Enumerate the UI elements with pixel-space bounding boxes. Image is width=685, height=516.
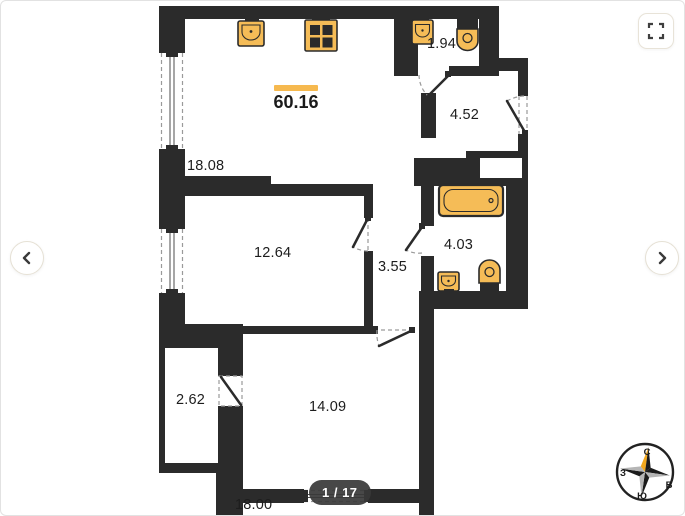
floorplan-viewer: 60.16 18.08 1.94 4.52 12.64 3.55 4.03 2.…: [0, 0, 685, 516]
windows: [162, 53, 369, 502]
chevron-left-icon: [20, 251, 34, 265]
sink-icon: [438, 272, 459, 294]
room-area-label: 3.55: [378, 259, 407, 275]
room-area-label: 2.62: [176, 392, 205, 408]
door-icon: [507, 96, 528, 136]
room-area-label: 4.52: [450, 107, 479, 123]
bathtub-icon: [439, 185, 503, 216]
room-area-label: 14.09: [309, 399, 346, 415]
total-area-label: 60.16: [264, 92, 328, 113]
total-area-bar: [274, 85, 318, 91]
room-area-label: 1.94: [427, 36, 456, 52]
floorplan-canvas: [1, 1, 685, 516]
toilet-icon: [457, 17, 478, 51]
window-icon: [162, 229, 183, 293]
fullscreen-button[interactable]: [638, 13, 674, 49]
compass-south-label: Ю: [637, 491, 647, 502]
page-indicator: 1 / 17: [309, 480, 371, 505]
room-area-label: 12.64: [254, 245, 291, 261]
next-slide-button[interactable]: [645, 241, 679, 275]
wall-niche: [480, 158, 522, 178]
door-icon: [377, 327, 415, 346]
toilet-icon: [479, 260, 500, 292]
room-area-label: 18.00: [235, 497, 272, 513]
door-icon: [219, 376, 242, 406]
room-area-label: 18.08: [187, 158, 224, 174]
fullscreen-icon: [647, 22, 665, 40]
window-icon: [162, 53, 183, 149]
room-area-label: 4.03: [444, 237, 473, 253]
compass-rose: С В Ю З: [613, 439, 677, 505]
doors: [219, 71, 528, 406]
compass-north-label: С: [644, 447, 651, 458]
chevron-right-icon: [655, 251, 669, 265]
prev-slide-button[interactable]: [10, 241, 44, 275]
door-icon: [406, 223, 425, 253]
door-icon: [353, 215, 371, 251]
compass-east-label: В: [666, 480, 673, 491]
door-icon: [419, 71, 451, 96]
walls: [159, 6, 528, 516]
compass-west-label: З: [620, 468, 626, 479]
